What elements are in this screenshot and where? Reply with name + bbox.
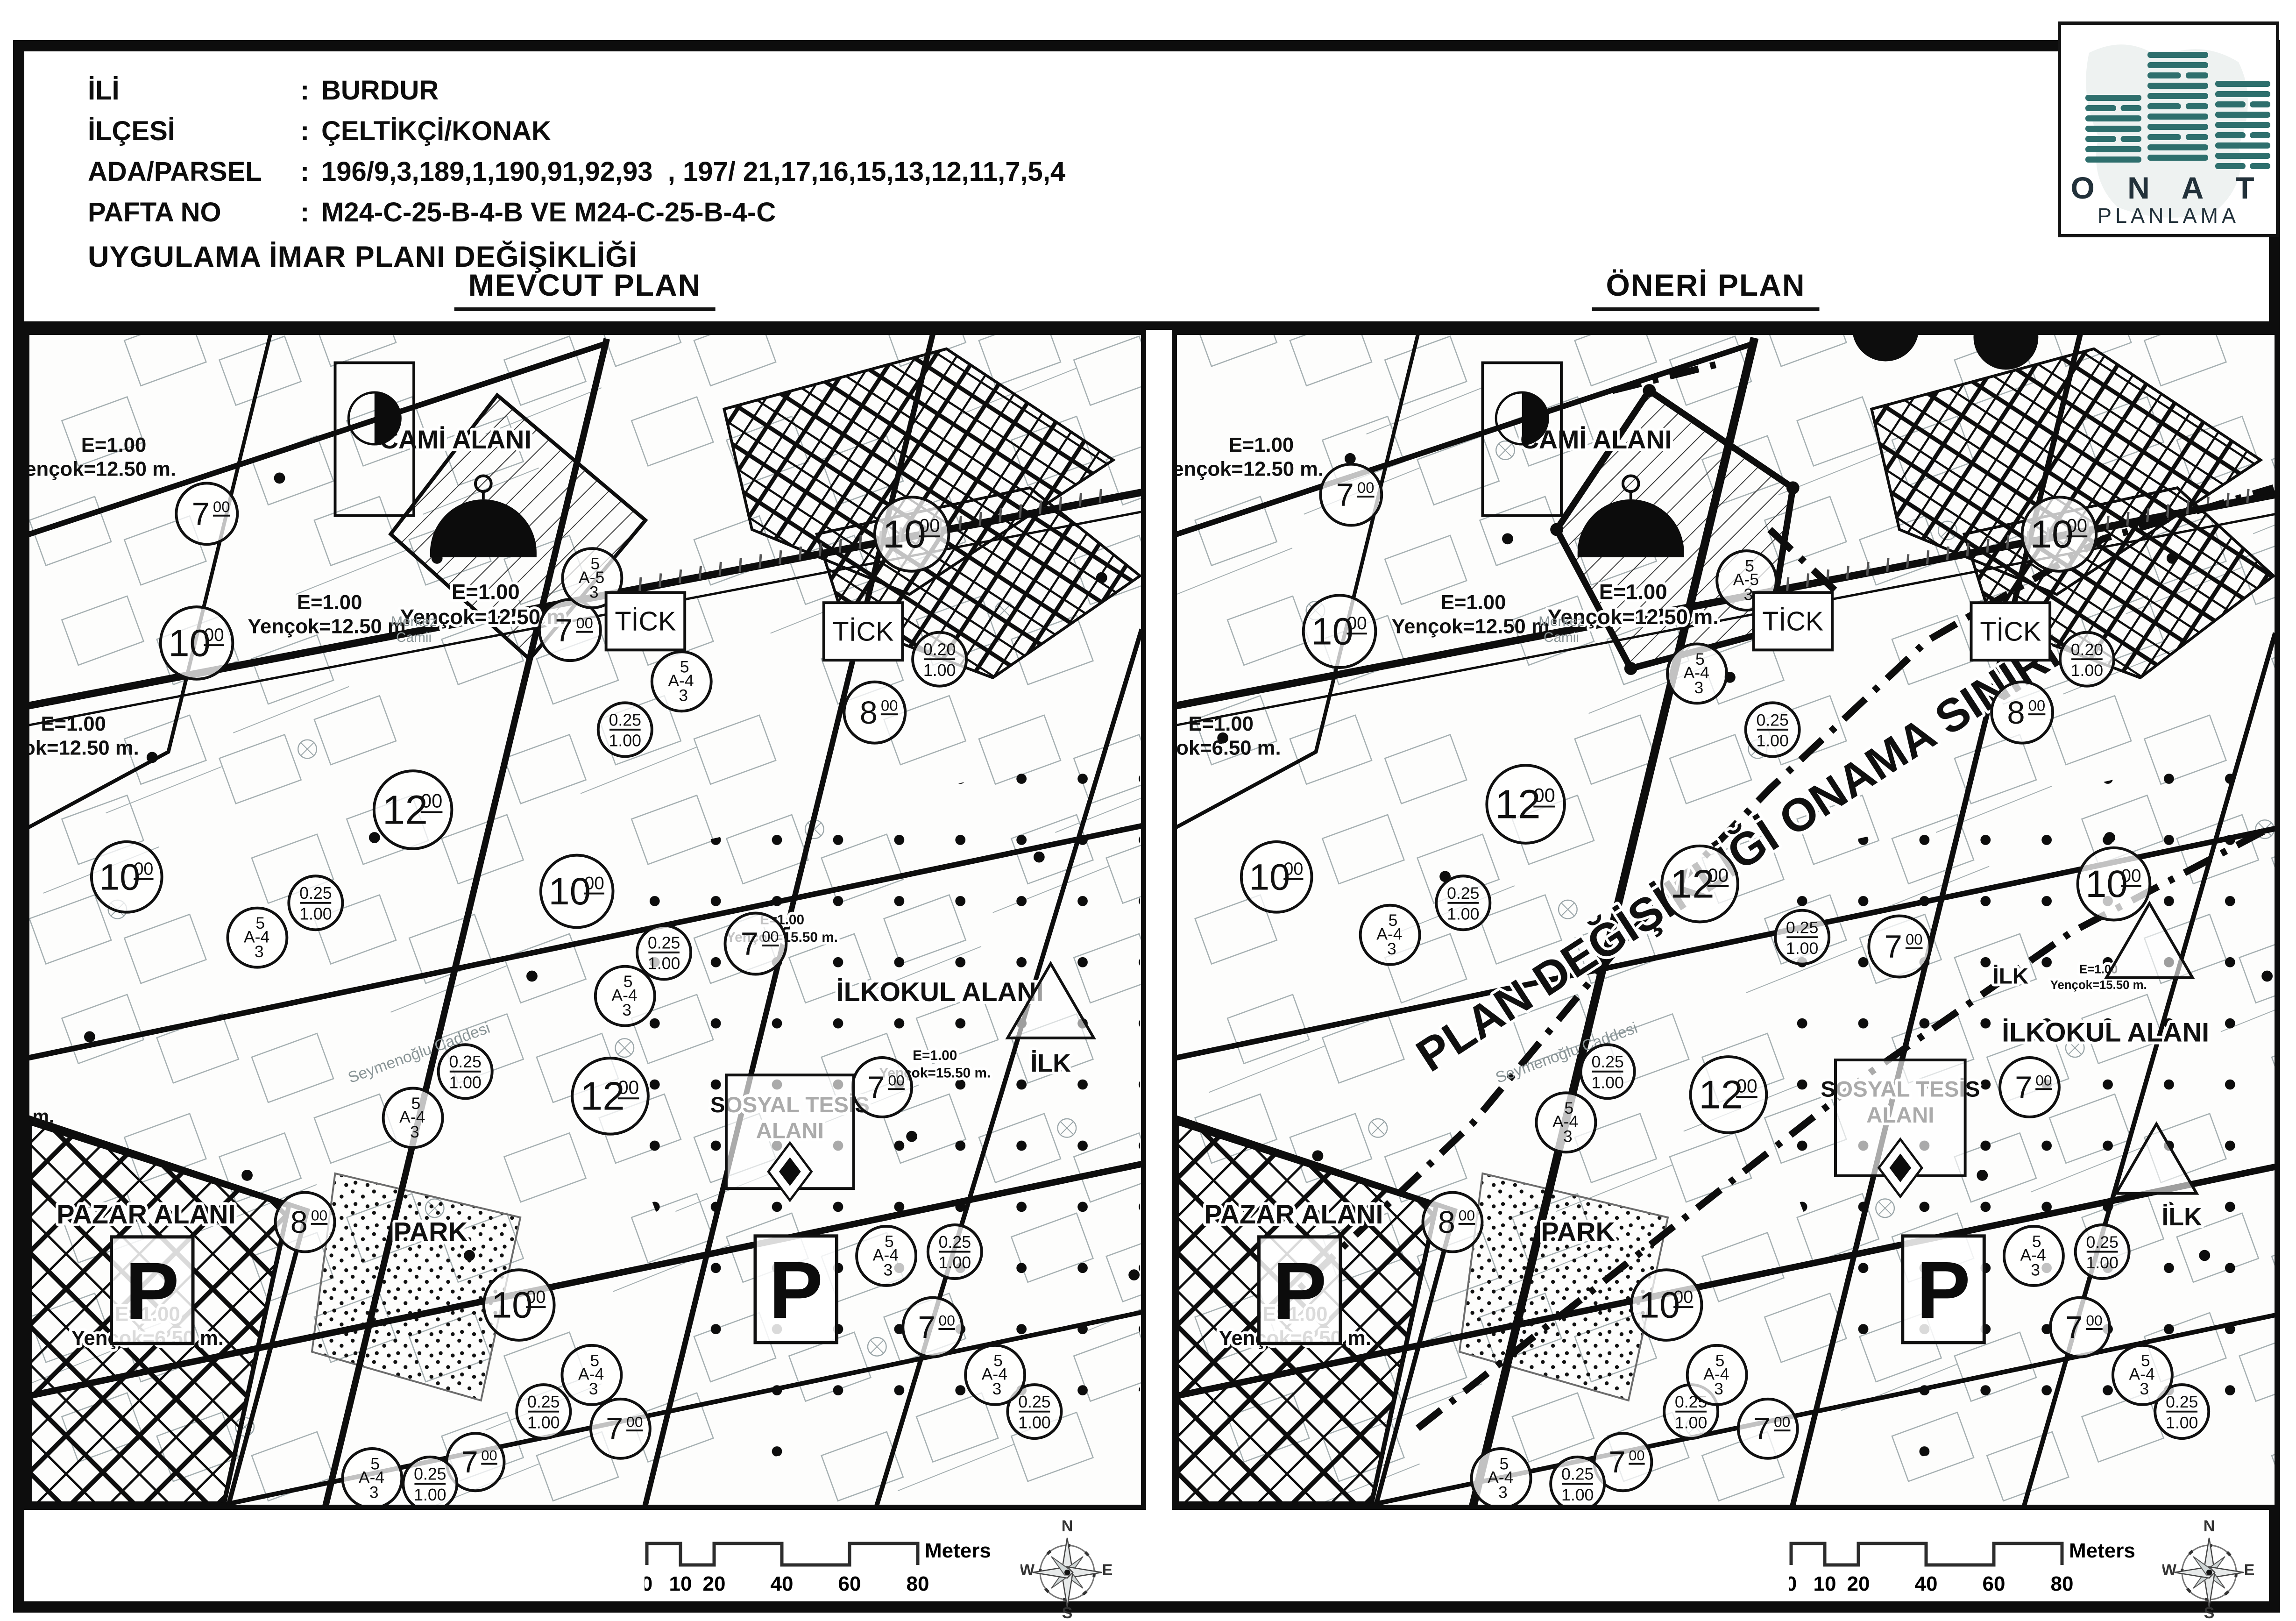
scale-bar-right: 0 10 20 40 60 80 Meters <box>1789 1529 2190 1599</box>
svg-text:00: 00 <box>526 1287 546 1307</box>
svg-text:0.25: 0.25 <box>414 1465 446 1484</box>
map-circle-label: 0.251.00 <box>637 925 691 979</box>
map-circle-label: 5A-43 <box>1361 905 1420 965</box>
mevcut-plan-drawing: CAMİ ALANIE=1.00Yençok=12.50 m.E=1.00Yen… <box>29 335 1141 1505</box>
svg-text:1.00: 1.00 <box>1786 939 1818 958</box>
svg-text:0.25: 0.25 <box>648 933 680 952</box>
svg-text:00: 00 <box>2035 1072 2052 1089</box>
map-label: CAMİ ALANI <box>380 425 531 454</box>
map-circle-label: 0.251.00 <box>289 876 342 930</box>
svg-text:8: 8 <box>860 695 878 731</box>
map-circle-label: 0.251.00 <box>1775 910 1829 964</box>
svg-text:1.00: 1.00 <box>2071 661 2103 680</box>
header-row-il: İLİ : BURDUR <box>88 70 1065 111</box>
svg-text:00: 00 <box>919 516 940 536</box>
svg-text:7: 7 <box>918 1310 935 1345</box>
map-circle-label: 800 <box>844 682 905 743</box>
svg-text:1.00: 1.00 <box>1018 1413 1050 1432</box>
map-circle-label: 700 <box>1320 464 1382 526</box>
left-panel-title: MEVCUT PLAN <box>454 267 716 311</box>
parking-symbol: P <box>755 1236 837 1343</box>
svg-text:TİCK: TİCK <box>1980 617 2041 647</box>
map-circle-label: 1000 <box>92 842 162 912</box>
svg-text:0.20: 0.20 <box>2071 640 2103 659</box>
svg-text:1.00: 1.00 <box>1756 732 1788 750</box>
map-circle-label: 1000 <box>484 1270 554 1340</box>
scale-unit: Meters <box>925 1539 991 1562</box>
map-circle-label: 700 <box>2000 1058 2059 1117</box>
svg-text:0.25: 0.25 <box>299 884 332 903</box>
compass-e: E <box>2244 1561 2255 1579</box>
scale-tick: 60 <box>1983 1572 2005 1595</box>
svg-text:TİCK: TİCK <box>1762 607 1823 637</box>
clipped-label-blob <box>1852 335 1919 362</box>
map-label: E=1.00 <box>297 591 362 614</box>
svg-text:P: P <box>769 1244 823 1335</box>
ada-parsel-value: 196/9,3,189,1,190,91,92,93 , 197/ 21,17,… <box>321 151 1065 192</box>
compass-w: W <box>2162 1561 2177 1579</box>
logo-graphic: O N A T PLANLAMA <box>2061 25 2276 234</box>
svg-text:0.25: 0.25 <box>609 711 641 729</box>
svg-text:00: 00 <box>1533 784 1555 806</box>
map-label: PAZAR ALANI <box>1204 1200 1383 1230</box>
map-circle-label: 700 <box>1869 916 1930 977</box>
map-label: E=1.00 <box>41 713 106 735</box>
svg-text:00: 00 <box>939 1312 955 1329</box>
oneri-plan-map: PLAN DEĞİŞİKLİĞİ ONAMA SINIRICAMİ ALANIE… <box>1172 330 2280 1510</box>
map-circle-label: 0.201.00 <box>913 633 966 686</box>
map-circle-label: 0.201.00 <box>2060 633 2114 686</box>
svg-text:00: 00 <box>134 859 153 879</box>
svg-text:1.00: 1.00 <box>1591 1073 1623 1092</box>
il-value: BURDUR <box>321 70 439 111</box>
map-circle-label: 0.251.00 <box>1551 1457 1604 1505</box>
map-circle-label: 0.251.00 <box>1581 1045 1635 1098</box>
commercial-label-box: TİCK <box>606 592 685 650</box>
header-row-ada-parsel: ADA/PARSEL : 196/9,3,189,1,190,91,92,93 … <box>88 151 1065 192</box>
svg-text:0.25: 0.25 <box>1786 918 1818 937</box>
map-circle-label: 0.251.00 <box>517 1385 570 1438</box>
map-circle-label: 1200 <box>572 1058 648 1134</box>
map-circle-label: 700 <box>591 1399 650 1458</box>
svg-text:00: 00 <box>1459 1207 1475 1223</box>
map-label: İLK <box>1992 964 2028 988</box>
ada-parsel-label: ADA/PARSEL <box>88 151 300 192</box>
map-circle-label: 700 <box>1738 1399 1798 1458</box>
svg-text:7: 7 <box>2065 1310 2083 1345</box>
map-label: İLKOKUL ALANI <box>836 977 1044 1007</box>
svg-text:3: 3 <box>1498 1483 1508 1501</box>
map-circle-label: 1000 <box>875 497 949 571</box>
oneri-plan-drawing: PLAN DEĞİŞİKLİĞİ ONAMA SINIRICAMİ ALANIE… <box>1177 335 2275 1505</box>
compass-rose-left: N S W E <box>1020 1517 1114 1620</box>
svg-text:00: 00 <box>888 1072 904 1089</box>
svg-text:0.25: 0.25 <box>939 1233 971 1251</box>
svg-text:00: 00 <box>1736 1075 1757 1096</box>
svg-text:7: 7 <box>461 1445 478 1479</box>
svg-text:3: 3 <box>1714 1379 1723 1398</box>
logo-sub: PLANLAMA <box>2098 204 2239 228</box>
map-label: Yençok=12.50 m. <box>1177 458 1324 480</box>
svg-text:0.25: 0.25 <box>527 1393 560 1411</box>
svg-text:1.00: 1.00 <box>299 904 332 923</box>
svg-text:8: 8 <box>1438 1205 1455 1240</box>
compass-star <box>2175 1538 2244 1607</box>
svg-text:3: 3 <box>992 1379 1002 1398</box>
map-circle-label: 5A-43 <box>2113 1345 2172 1405</box>
svg-text:0.25: 0.25 <box>449 1052 481 1071</box>
svg-text:3: 3 <box>1387 939 1396 958</box>
svg-text:1.00: 1.00 <box>648 954 680 973</box>
commercial-label-box: TİCK <box>824 603 903 660</box>
map-label: Yençok=15.50 m. <box>2050 979 2147 992</box>
map-circle-label: 5A-43 <box>857 1226 916 1286</box>
map-circle-label: 1200 <box>374 771 452 849</box>
svg-text:1.00: 1.00 <box>923 661 956 680</box>
map-label: E=1.00 <box>452 580 520 604</box>
map-label: MerkezCamii <box>391 614 437 645</box>
map-circle-label: 1200 <box>1487 765 1565 843</box>
map-label: E=1.00 <box>1441 591 1506 614</box>
svg-text:00: 00 <box>213 498 230 515</box>
compass-n: N <box>2204 1517 2215 1535</box>
map-circle-label: 0.251.00 <box>1746 703 1800 756</box>
svg-text:3: 3 <box>410 1123 419 1141</box>
separator: : <box>300 151 321 192</box>
parking-symbol: P <box>112 1237 193 1344</box>
compass-s: S <box>1062 1604 1073 1620</box>
svg-text:1.00: 1.00 <box>414 1486 446 1504</box>
svg-text:1.00: 1.00 <box>1447 904 1479 923</box>
svg-text:00: 00 <box>2028 697 2045 714</box>
svg-text:7: 7 <box>2015 1070 2032 1105</box>
compass-n: N <box>1062 1517 1073 1535</box>
map-circle-label: 5A-43 <box>342 1449 402 1505</box>
svg-text:3: 3 <box>589 1379 598 1398</box>
scale-tick: 10 <box>1814 1572 1836 1595</box>
svg-text:7: 7 <box>1885 929 1902 965</box>
map-circle-label: 1200 <box>1691 1057 1767 1133</box>
svg-text:TİCK: TİCK <box>833 617 894 647</box>
svg-text:1.00: 1.00 <box>2166 1413 2198 1432</box>
svg-text:3: 3 <box>2031 1260 2040 1279</box>
svg-text:3: 3 <box>622 1001 631 1019</box>
commercial-label-box: TİCK <box>1971 603 2050 660</box>
map-circle-label: 1000 <box>1241 842 1312 912</box>
svg-text:00: 00 <box>1629 1447 1644 1464</box>
svg-text:0.25: 0.25 <box>1447 884 1479 903</box>
map-circle-label: 5A-43 <box>595 967 655 1026</box>
map-circle-label: 0.251.00 <box>598 703 652 756</box>
map-label: E=1.00 <box>1599 580 1667 604</box>
commercial-label-box: TİCK <box>1753 592 1832 650</box>
header-map-divider <box>13 321 2280 330</box>
scale-tick: 10 <box>669 1572 692 1595</box>
parking-symbol: P <box>1903 1236 1984 1343</box>
header-row-ilce: İLÇESİ : ÇELTİKÇİ/KONAK <box>88 111 1065 151</box>
svg-text:00: 00 <box>1673 1287 1693 1307</box>
map-label: E=1.00 <box>1229 434 1294 456</box>
il-label: İLİ <box>88 70 300 111</box>
map-circle-label: 0.251.00 <box>439 1045 492 1098</box>
map-label: E=1.00 <box>1188 713 1253 735</box>
map-circle-label: 1000 <box>541 855 613 928</box>
svg-text:00: 00 <box>1708 864 1729 886</box>
map-circle-label: 5A-43 <box>652 652 711 711</box>
map-circle-label: 5A-43 <box>1536 1093 1595 1152</box>
svg-text:P: P <box>1916 1244 1970 1335</box>
map-circle-label: 700 <box>725 913 786 974</box>
svg-text:0.25: 0.25 <box>1591 1052 1623 1071</box>
map-circle-label: 1000 <box>2078 848 2150 920</box>
svg-text:7: 7 <box>192 496 210 532</box>
scale-tick: 40 <box>771 1572 794 1595</box>
map-label: İLK <box>2162 1203 2203 1231</box>
map-circle-label: 700 <box>903 1298 962 1357</box>
svg-text:3: 3 <box>2140 1379 2149 1398</box>
svg-text:7: 7 <box>1753 1412 1771 1446</box>
onat-planlama-logo: O N A T PLANLAMA <box>2058 21 2279 237</box>
map-circle-label: 800 <box>1991 682 2053 743</box>
scale-bar-left: 0 10 20 40 60 80 Meters <box>645 1529 1046 1599</box>
svg-text:00: 00 <box>1774 1414 1790 1430</box>
map-circle-label: 0.251.00 <box>2076 1225 2129 1279</box>
map-circle-label: 5A-43 <box>2004 1226 2063 1286</box>
scale-tick: 0 <box>1789 1572 1797 1595</box>
svg-text:00: 00 <box>2086 1312 2102 1329</box>
svg-text:0.25: 0.25 <box>1018 1393 1050 1411</box>
map-label: Yençok=6.50 m. <box>1177 737 1281 759</box>
map-label: Yençok=12.50 m. <box>248 616 411 638</box>
svg-text:P: P <box>125 1245 179 1336</box>
mevcut-plan-map: CAMİ ALANIE=1.00Yençok=12.50 m.E=1.00Yen… <box>24 330 1146 1510</box>
map-label: İLKOKUL ALANI <box>2002 1017 2209 1047</box>
map-circle-label: 800 <box>1423 1193 1482 1252</box>
svg-text:3: 3 <box>1744 585 1753 604</box>
map-label: İLK <box>1030 1050 1071 1077</box>
map-label: Yençok=12.50 m. <box>29 458 176 480</box>
svg-text:00: 00 <box>1283 859 1303 879</box>
map-label: E=1.00 <box>913 1048 957 1063</box>
map-circle-label: 5A-43 <box>383 1088 443 1147</box>
svg-text:7: 7 <box>867 1070 885 1105</box>
scale-tick: 20 <box>703 1572 726 1595</box>
svg-text:00: 00 <box>584 873 604 893</box>
svg-text:00: 00 <box>762 928 779 945</box>
svg-text:1.00: 1.00 <box>449 1073 481 1092</box>
map-circle-label: 1200 <box>1662 846 1738 922</box>
svg-text:1.00: 1.00 <box>1675 1413 1707 1432</box>
svg-text:7: 7 <box>606 1412 623 1446</box>
map-circle-label: 1000 <box>161 607 233 679</box>
map-circle-label: 0.251.00 <box>403 1457 457 1505</box>
separator: : <box>300 192 321 233</box>
map-circle-label: 700 <box>2050 1298 2110 1357</box>
ilce-value: ÇELTİKÇİ/KONAK <box>321 111 551 151</box>
scale-tick: 20 <box>1847 1572 1870 1595</box>
map-circle-label: 1000 <box>1304 595 1376 668</box>
scale-tick: 80 <box>2051 1572 2074 1595</box>
header-row-pafta: PAFTA NO : M24-C-25-B-4-B VE M24-C-25-B-… <box>88 192 1065 233</box>
map-label: m. <box>33 1106 54 1127</box>
map-circle-label: 5A-43 <box>1472 1449 1531 1505</box>
parking-symbol: P <box>1259 1237 1341 1344</box>
scale-tick: 0 <box>645 1572 652 1595</box>
svg-text:1.00: 1.00 <box>609 732 641 750</box>
svg-text:0.25: 0.25 <box>2166 1393 2198 1411</box>
map-label: PARK <box>1541 1217 1615 1247</box>
map-circle-label: 5A-43 <box>1687 1345 1747 1405</box>
ilce-label: İLÇESİ <box>88 111 300 151</box>
map-label: Yençok=12.50 m. <box>29 737 139 759</box>
scale-unit: Meters <box>2069 1539 2135 1562</box>
svg-text:00: 00 <box>2067 516 2087 536</box>
map-circle-label: 1000 <box>2022 497 2097 571</box>
map-circle-label: 800 <box>276 1193 335 1252</box>
svg-text:7: 7 <box>741 926 758 962</box>
compass-e: E <box>1102 1561 1113 1579</box>
map-circle-label: 0.251.00 <box>928 1225 982 1279</box>
svg-text:TİCK: TİCK <box>615 607 676 637</box>
svg-text:7: 7 <box>555 612 573 648</box>
clipped-label-blob <box>1973 335 2038 370</box>
scale-tick: 80 <box>907 1572 929 1595</box>
compass-rose-right: N S W E <box>2162 1517 2256 1620</box>
svg-text:00: 00 <box>421 789 442 811</box>
compass-star <box>1033 1538 1102 1607</box>
svg-text:3: 3 <box>255 942 264 961</box>
map-label: Yençok=12.50 m. <box>1391 616 1555 638</box>
pafta-value: M24-C-25-B-4-B VE M24-C-25-B-4-C <box>321 192 776 233</box>
scale-tick: 60 <box>838 1572 861 1595</box>
svg-text:00: 00 <box>311 1207 327 1223</box>
map-label: E=1.00 <box>81 434 146 456</box>
map-circle-label: 5A-43 <box>965 1345 1025 1405</box>
scale-tick: 40 <box>1915 1572 1938 1595</box>
map-circle-label: 5A-43 <box>562 1345 621 1405</box>
svg-text:0.25: 0.25 <box>1756 711 1788 729</box>
svg-text:1.00: 1.00 <box>2086 1253 2118 1272</box>
svg-text:P: P <box>1273 1245 1327 1336</box>
separator: : <box>300 111 321 151</box>
svg-text:0.20: 0.20 <box>923 640 956 659</box>
svg-text:00: 00 <box>1347 613 1367 633</box>
svg-text:1.00: 1.00 <box>527 1413 560 1432</box>
svg-text:1.00: 1.00 <box>1561 1486 1594 1504</box>
svg-text:00: 00 <box>204 625 224 645</box>
map-circle-label: 700 <box>176 483 237 544</box>
svg-text:1.00: 1.00 <box>939 1253 971 1272</box>
right-panel-title: ÖNERİ PLAN <box>1592 267 1819 311</box>
svg-text:3: 3 <box>884 1260 893 1279</box>
svg-text:00: 00 <box>626 1414 643 1430</box>
svg-text:7: 7 <box>1609 1445 1626 1479</box>
svg-text:00: 00 <box>481 1447 497 1464</box>
svg-text:00: 00 <box>1357 479 1374 496</box>
map-circle-label: 5A-43 <box>1667 644 1727 703</box>
svg-text:3: 3 <box>589 583 599 602</box>
svg-text:00: 00 <box>2121 866 2141 886</box>
svg-text:8: 8 <box>2007 695 2025 731</box>
compass-s: S <box>2204 1604 2215 1620</box>
svg-text:00: 00 <box>618 1076 639 1098</box>
svg-text:3: 3 <box>1694 678 1703 697</box>
svg-text:00: 00 <box>1906 931 1922 948</box>
separator: : <box>300 70 321 111</box>
map-label: PARK <box>393 1217 468 1247</box>
svg-text:3: 3 <box>679 686 688 705</box>
svg-text:0.25: 0.25 <box>2086 1233 2118 1251</box>
svg-text:00: 00 <box>576 614 593 632</box>
compass-w: W <box>1020 1561 1035 1579</box>
svg-text:3: 3 <box>1563 1127 1573 1146</box>
svg-text:00: 00 <box>881 697 898 714</box>
map-circle-label: 1000 <box>1631 1270 1702 1340</box>
pafta-label: PAFTA NO <box>88 192 300 233</box>
svg-text:3: 3 <box>369 1483 379 1501</box>
plan-sheet: İLİ : BURDUR İLÇESİ : ÇELTİKÇİ/KONAK ADA… <box>0 0 2296 1621</box>
map-circle-label: 5A-43 <box>227 908 287 967</box>
svg-text:7: 7 <box>1336 477 1354 513</box>
map-circle-label: 700 <box>852 1058 912 1117</box>
map-label: PAZAR ALANI <box>57 1200 235 1230</box>
logo-name: O N A T <box>2070 171 2266 205</box>
svg-text:0.25: 0.25 <box>1561 1465 1594 1484</box>
map-label: MerkezCamii <box>1538 614 1584 645</box>
title-block: İLİ : BURDUR İLÇESİ : ÇELTİKÇİ/KONAK ADA… <box>88 70 1065 274</box>
map-circle-label: 0.251.00 <box>1436 876 1490 930</box>
svg-text:8: 8 <box>291 1205 308 1240</box>
